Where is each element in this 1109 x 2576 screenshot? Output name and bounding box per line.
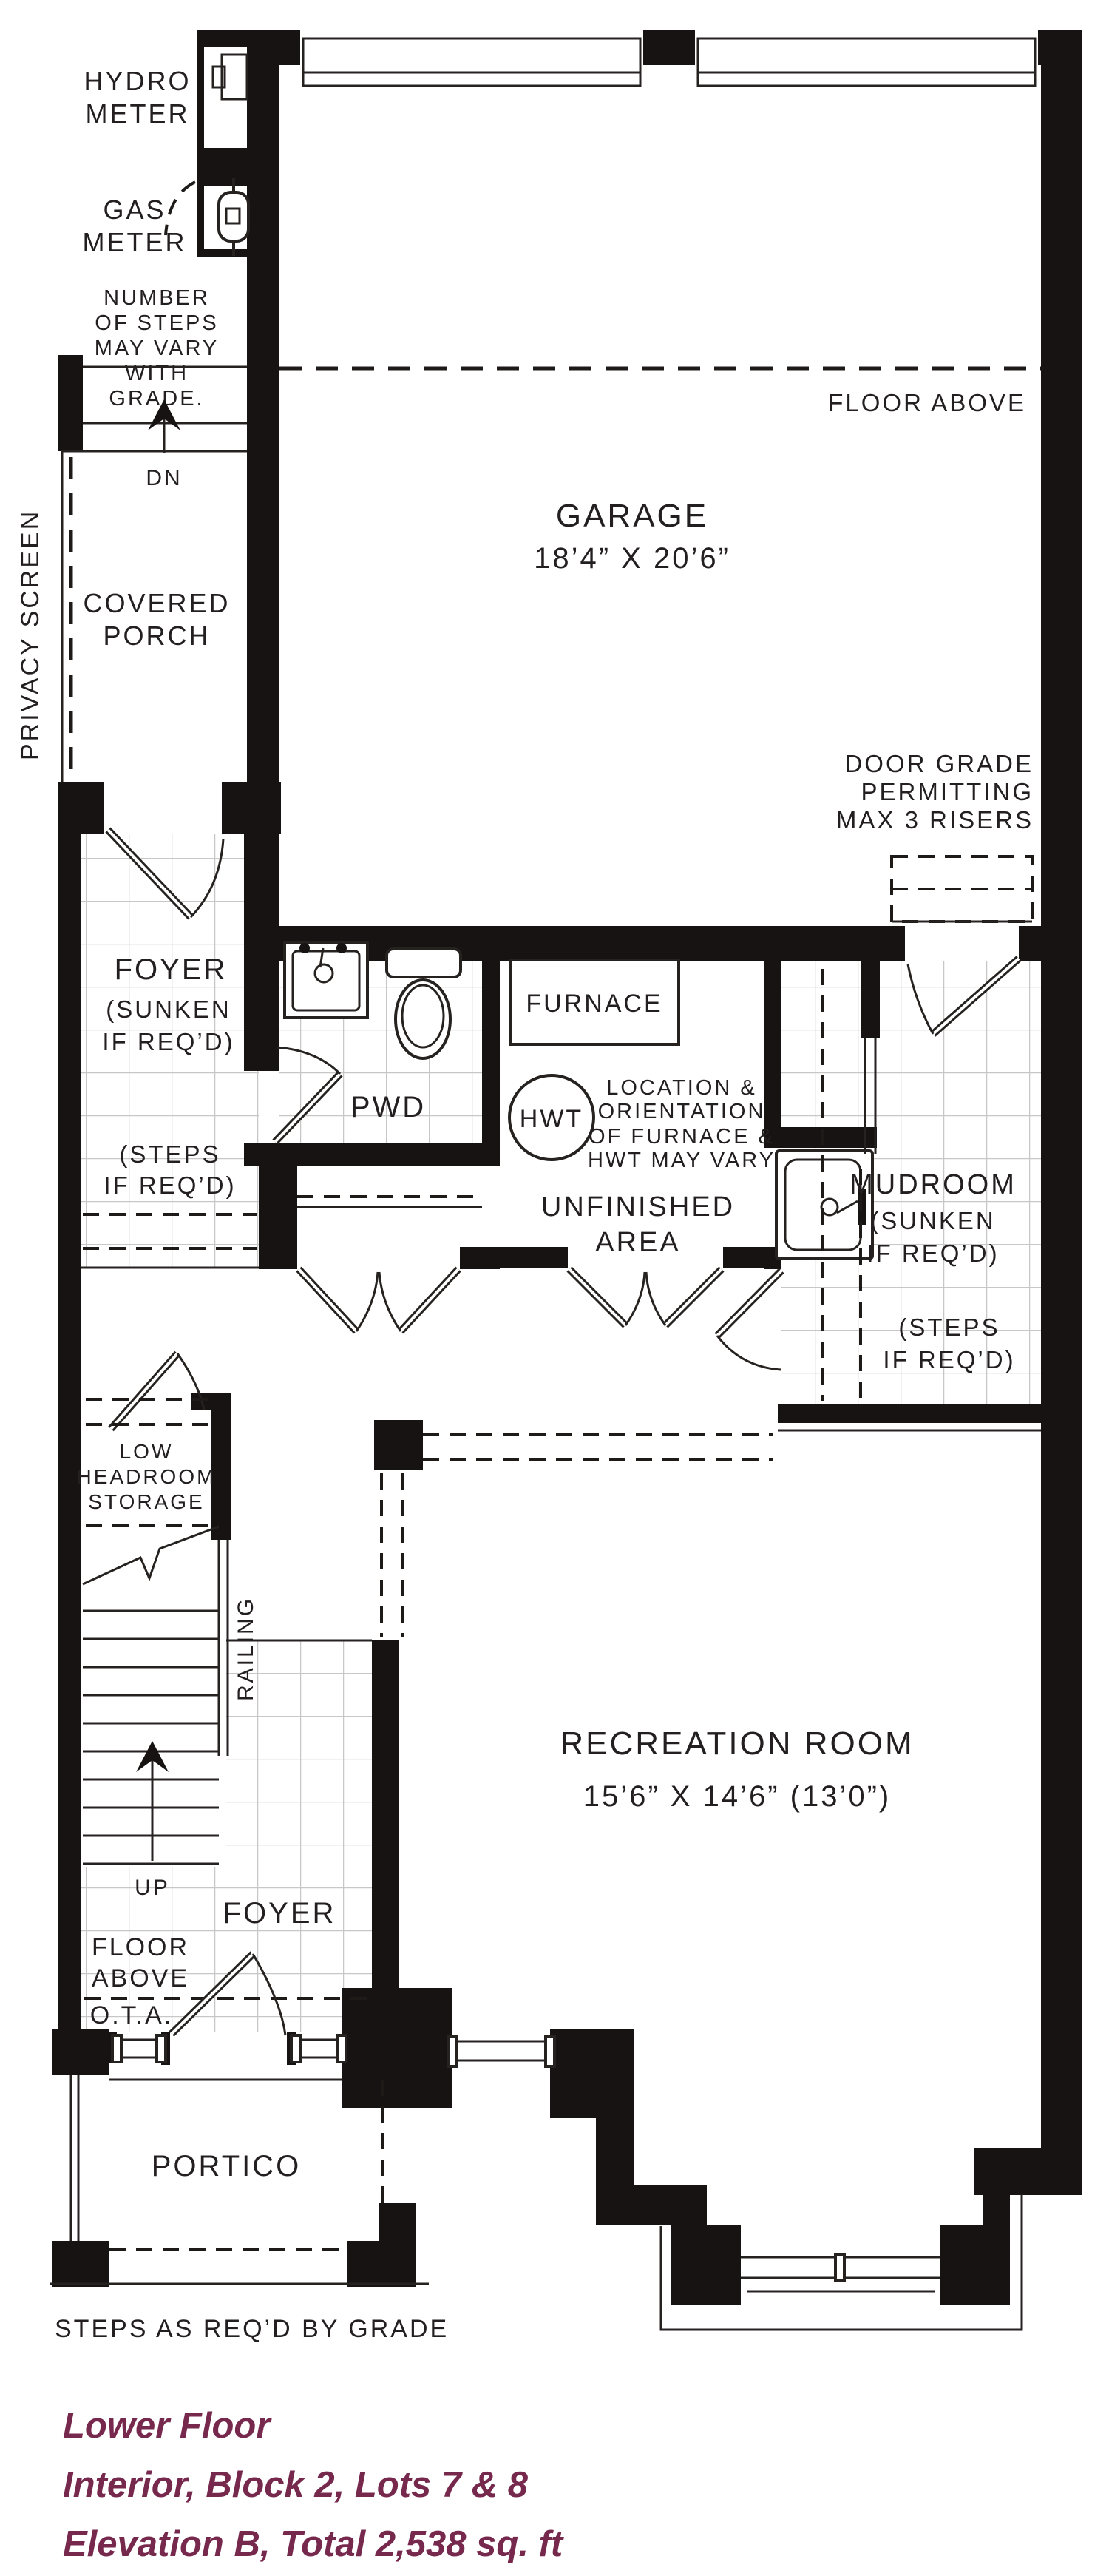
pwd-faucet-knob-right [336, 943, 347, 953]
mudroom-west-wall [764, 950, 781, 1135]
gas-meter-body [219, 192, 248, 241]
french-door-right-post [460, 1247, 500, 1269]
bay-post-a [550, 2029, 634, 2118]
unfinished-mudroom-door-arc [717, 1336, 781, 1370]
french-door-left-swing-arc [356, 1272, 378, 1331]
rec-front-window-jamb-left [448, 2037, 457, 2066]
pwd-east-wall [482, 961, 500, 1158]
covered-porch-label-line1: COVERED [83, 588, 230, 618]
garage-top-wall-mid-post [643, 30, 695, 65]
storage-door-leaf-inner [111, 1353, 177, 1429]
french-door-right-leaf-inner [401, 1269, 458, 1331]
dn-label: DN [146, 466, 182, 490]
front-window-jamb-4 [337, 2035, 346, 2062]
portico-post-tl [52, 2029, 109, 2075]
floorplan-sheet: FLOOR ABOVE GARAGE 18’4” X 20’6” DOOR GR… [0, 0, 1109, 2576]
foyer-steps-note-line1: (STEPS [119, 1140, 220, 1168]
bay-window-mullion [835, 2254, 844, 2281]
caption-line1: Lower Floor [63, 2406, 272, 2446]
rec-double-door-right-leaf-inner [665, 1269, 722, 1325]
mudroom-label: MUDROOM [849, 1169, 1017, 1200]
steps-vary-note-line3: MAY VARY [95, 337, 220, 360]
hydro-meter-label-line2: METER [86, 98, 190, 129]
front-window-jamb-2 [157, 2035, 166, 2062]
garage: FLOOR ABOVE GARAGE 18’4” X 20’6” DOOR GR… [279, 38, 1041, 922]
garage-door-band-right [698, 38, 1035, 86]
unfinished-area-label-line2: AREA [595, 1227, 680, 1258]
unfinished-mudroom-door-leaf-inner [717, 1271, 781, 1336]
foyer-upper-label: FOYER [115, 953, 228, 986]
furnace-label: FURNACE [526, 990, 662, 1018]
caption-block: Lower Floor Interior, Block 2, Lots 7 & … [63, 2406, 564, 2564]
recreation-room-dims: 15’6” X 14’6” (13’0”) [583, 1780, 892, 1813]
foyer-north-right-post [222, 782, 281, 834]
bay-window-post-left [671, 2225, 741, 2305]
door-grade-note-line3: MAX 3 RISERS [836, 806, 1034, 834]
mudroom-steps-note-line2: IF REQ’D) [883, 1346, 1015, 1373]
portico-label: PORTICO [152, 2150, 302, 2183]
steps-vary-note-line2: OF STEPS [95, 311, 218, 335]
rec-double-door-left-leaf-inner [569, 1269, 625, 1325]
hall-west-post [259, 1166, 297, 1269]
covered-porch-label-line2: PORCH [103, 621, 210, 651]
french-door-right-swing-arc [379, 1272, 401, 1331]
hwt-note-line4: HWT MAY VARY [588, 1149, 776, 1172]
portico-right-wall [379, 2203, 416, 2242]
hwt-note-line1: LOCATION & [606, 1076, 757, 1100]
up-label: UP [135, 1876, 170, 1900]
garage-room-label: GARAGE [556, 498, 708, 534]
portico-post-br [347, 2241, 416, 2287]
foyer-sunken-note-line1: (SUNKEN [106, 995, 231, 1023]
mudroom-sunken-note-line1: (SUNKEN [870, 1207, 996, 1234]
steps-vary-note-line5: GRADE. [109, 387, 204, 410]
mudroom-steps-note-line1: (STEPS [898, 1314, 1000, 1341]
garage-door-band-left [303, 38, 640, 86]
hwt-note-line2: ORIENTATION [598, 1100, 766, 1123]
pwd-sink-outer [285, 942, 367, 1018]
recreation-room-label: RECREATION ROOM [560, 1725, 914, 1762]
pwd-faucet-knob-left [299, 943, 310, 953]
garage-floor-above-label: FLOOR ABOVE [828, 389, 1026, 416]
floor-above-note-line2: ABOVE [92, 1964, 189, 1992]
west-house-wall [58, 782, 81, 2061]
floorplan-drawing: FLOOR ABOVE GARAGE 18’4” X 20’6” DOOR GR… [0, 0, 1109, 2576]
floor-above-note-line1: FLOOR [92, 1933, 189, 1961]
hydro-meter-niche [204, 47, 247, 148]
mudroom-south-wall [778, 1404, 1041, 1423]
hwt-note-line3: OF FURNACE & [589, 1125, 775, 1149]
pwd-west-wall [244, 834, 279, 1071]
foyer-se-corner-wall [342, 1988, 452, 2108]
porch-top-post [58, 355, 83, 451]
door-grade-note-line2: PERMITTING [861, 778, 1034, 805]
hwt-label: HWT [520, 1105, 583, 1133]
storage-label-line1: LOW [120, 1440, 174, 1463]
pwd-south-wall [244, 1143, 500, 1166]
rec-front-window-jamb-right [546, 2037, 554, 2066]
steps-vary-note-line1: NUMBER [104, 286, 210, 310]
bay-step-vertical [596, 2108, 634, 2191]
privacy-screen-label: PRIVACY SCREEN [16, 510, 44, 760]
foyer-lower-label: FOYER [223, 1897, 336, 1930]
caption-line3: Elevation B, Total 2,538 sq. ft [63, 2524, 564, 2564]
recreation-west-wall [372, 1640, 399, 1988]
pwd-label: PWD [350, 1091, 426, 1123]
covered-porch: NUMBER OF STEPS MAY VARY WITH GRADE. DN … [16, 286, 247, 782]
steps-vary-note-line4: WITH [125, 362, 189, 385]
storage-label-line3: STORAGE [88, 1490, 204, 1513]
bay-step-right [974, 2148, 1082, 2195]
front-window-jamb-3 [291, 2035, 300, 2062]
hydro-meter-label-line1: HYDRO [84, 66, 191, 96]
east-exterior-wall [1041, 30, 1082, 2151]
foyer-sunken-note-line2: IF REQ’D) [102, 1028, 234, 1055]
portico-post-bl [52, 2241, 109, 2287]
pwd-toilet-tank [387, 949, 461, 977]
bay-step-horizontal [596, 2185, 707, 2225]
rec-double-door-left-arc [625, 1272, 645, 1325]
gas-meter-label-line1: GAS [103, 195, 166, 225]
garage-door-post [1019, 926, 1082, 961]
stair-treads [83, 1611, 219, 1864]
tub-alcove-wall [764, 1127, 877, 1148]
bay-window-post-right [940, 2225, 1010, 2305]
mudroom-stub-wall [861, 961, 880, 1038]
bay-right-bridge [983, 2191, 1010, 2235]
unfinished-area-label-line1: UNFINISHED [541, 1191, 735, 1223]
steps-by-grade-label: STEPS AS REQ’D BY GRADE [55, 2315, 449, 2343]
garage-dimensions-label: 18’4” X 20’6” [534, 542, 730, 575]
gas-meter-label-line2: METER [83, 227, 187, 257]
ota-label: O.T.A. [90, 2001, 173, 2029]
storage-label-line2: HEADROOM [77, 1465, 217, 1488]
mudroom-sunken-note-line2: IF REQ’D) [866, 1240, 999, 1267]
unfinished-south-wall-a [500, 1247, 568, 1268]
front-window-jamb-1 [112, 2035, 121, 2062]
caption-line2: Interior, Block 2, Lots 7 & 8 [63, 2465, 529, 2505]
foyer-steps-note-line2: IF REQ’D) [104, 1172, 236, 1199]
door-grade-note-line1: DOOR GRADE [844, 750, 1034, 777]
french-door-left-leaf-inner [299, 1269, 356, 1331]
stairs-break-line [83, 1527, 219, 1584]
railing-label: RAILING [234, 1597, 258, 1701]
recreation-north-post [374, 1420, 423, 1470]
rec-double-door-right-arc [646, 1272, 665, 1325]
